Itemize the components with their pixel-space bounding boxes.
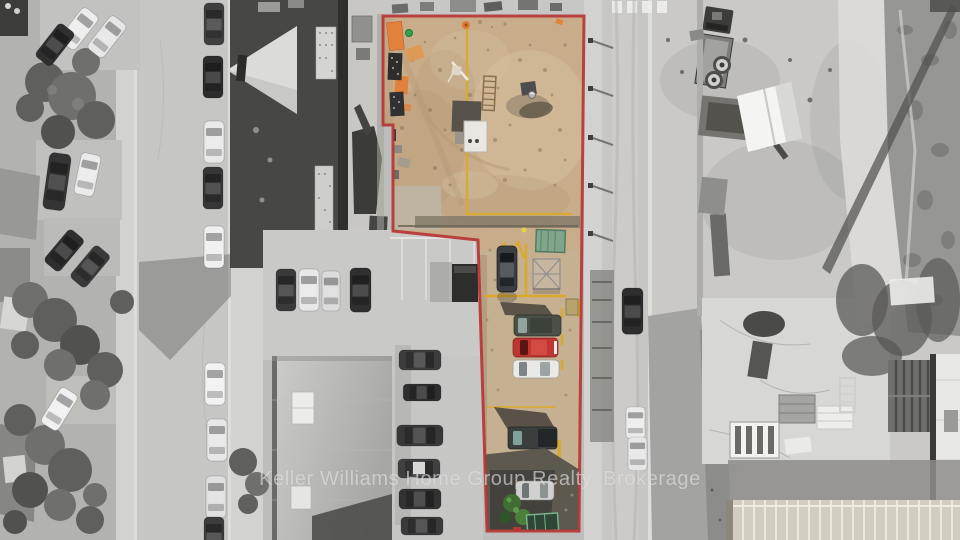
car	[205, 363, 225, 405]
car	[203, 56, 223, 98]
ladder-on-ground	[482, 76, 496, 111]
strip-car-black	[497, 246, 517, 303]
worker-hivis	[522, 228, 527, 233]
construction-fence	[590, 270, 614, 442]
top-sidewalk-items	[383, 0, 585, 16]
car	[622, 288, 643, 334]
car	[299, 269, 319, 311]
metal-cage	[533, 259, 560, 294]
car	[322, 271, 340, 311]
tarp-pile	[743, 311, 785, 337]
car	[276, 269, 296, 311]
construction-site	[584, 0, 960, 540]
car	[399, 489, 441, 509]
utility-box	[566, 299, 578, 315]
car	[403, 384, 441, 401]
car	[204, 226, 224, 268]
green-dumpster	[526, 513, 558, 532]
building-top-center	[227, 0, 348, 268]
strip-car-white	[513, 360, 559, 378]
car	[401, 517, 443, 535]
floor-joist-grid	[726, 500, 960, 540]
rooftop-ac-unit	[291, 486, 311, 509]
car	[204, 3, 224, 45]
strip-car-red	[513, 338, 558, 357]
car	[397, 425, 443, 446]
building-bottom-center	[272, 356, 392, 540]
green-shed	[536, 230, 566, 253]
car	[626, 407, 645, 439]
car	[207, 419, 227, 461]
aerial-photo-canvas	[0, 0, 960, 540]
aerial-photo: Keller Williams Home Group Realty, Broke…	[0, 0, 960, 540]
car	[206, 476, 226, 518]
car	[350, 268, 371, 312]
car	[628, 437, 647, 471]
car	[204, 121, 224, 163]
strip-car-white-bottom	[516, 481, 554, 500]
green-marker	[406, 30, 413, 37]
car	[399, 350, 441, 370]
car	[203, 167, 223, 209]
car	[204, 517, 224, 540]
